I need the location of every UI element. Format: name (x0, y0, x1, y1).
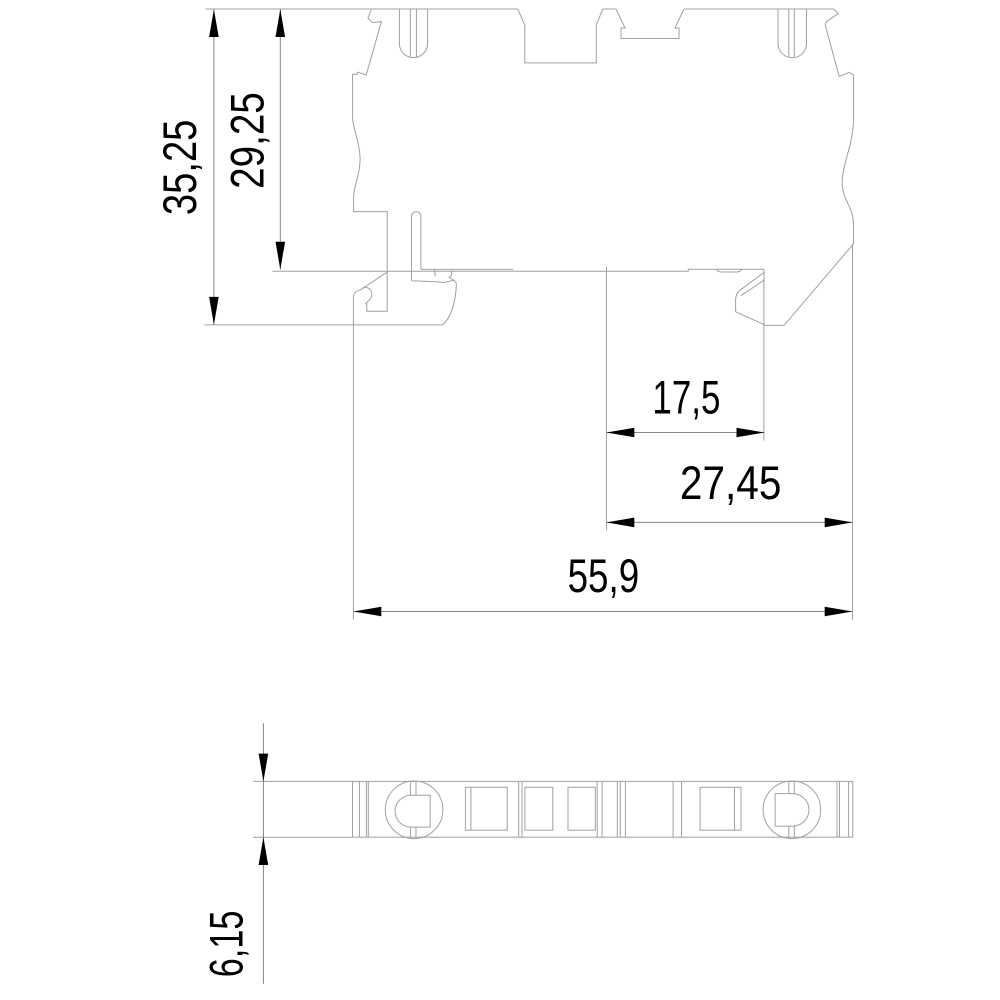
svg-text:29,25: 29,25 (221, 92, 274, 189)
svg-text:55,9: 55,9 (568, 549, 640, 602)
svg-text:17,5: 17,5 (652, 371, 720, 424)
svg-text:27,45: 27,45 (680, 456, 782, 509)
svg-text:35,25: 35,25 (153, 120, 206, 216)
svg-text:6,15: 6,15 (199, 911, 252, 978)
